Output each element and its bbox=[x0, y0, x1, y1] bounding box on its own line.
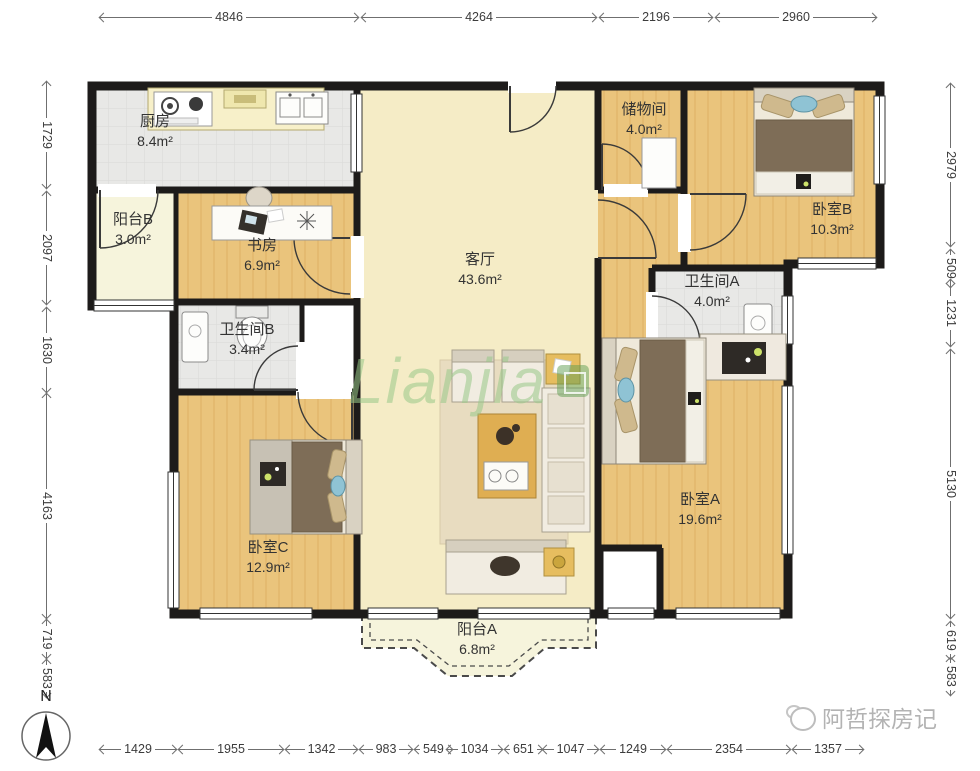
dim-top-1: 4846 bbox=[100, 10, 358, 24]
bed-c-bed bbox=[250, 440, 362, 534]
window bbox=[478, 608, 590, 619]
living-room-set bbox=[440, 350, 590, 594]
dim-right-6: 583 bbox=[944, 658, 958, 690]
room-label-bath-b: 卫生间B 3.4m² bbox=[197, 320, 297, 358]
window bbox=[798, 258, 876, 269]
publisher-watermark: 阿哲探房记 bbox=[786, 700, 937, 734]
room-label-bed-c: 卧室C 12.9m² bbox=[218, 538, 318, 576]
compass: N bbox=[16, 688, 76, 769]
compass-rose-icon bbox=[16, 706, 76, 764]
room-label-living: 客厅 43.6m² bbox=[430, 250, 530, 288]
dim-right-5: 619 bbox=[944, 622, 958, 656]
room-label-bath-a: 卫生间A 4.0m² bbox=[662, 272, 762, 310]
exterior-notch bbox=[598, 548, 662, 612]
dim-top-2: 4264 bbox=[362, 10, 596, 24]
dim-right-3: 1231 bbox=[944, 280, 958, 346]
dim-bottom-9: 1249 bbox=[601, 742, 665, 756]
dim-right-1: 2979 bbox=[944, 84, 958, 246]
dim-bottom-2: 1955 bbox=[179, 742, 283, 756]
dim-bottom-11: 1357 bbox=[793, 742, 863, 756]
dim-left-3: 1630 bbox=[40, 308, 54, 392]
dim-left-5: 719 bbox=[40, 620, 54, 658]
dim-bottom-4: 983 bbox=[360, 742, 412, 756]
dim-top-4: 2960 bbox=[716, 10, 876, 24]
dim-left-2: 2097 bbox=[40, 192, 54, 304]
dim-right-4: 5130 bbox=[944, 350, 958, 618]
room-label-balcony-b: 阳台B 3.0m² bbox=[83, 210, 183, 248]
bed-b-bed bbox=[754, 88, 854, 196]
dim-bottom-1: 1429 bbox=[100, 742, 176, 756]
window bbox=[608, 608, 654, 619]
room-label-bed-b: 卧室B 10.3m² bbox=[782, 200, 882, 238]
window bbox=[200, 608, 312, 619]
window bbox=[94, 300, 174, 311]
floor-plan-screenshot: 厨房 8.4m² 阳台B 3.0m² 书房 6.9m² 卫生间B 3.4m² 客… bbox=[0, 0, 980, 771]
storage-shelf bbox=[642, 138, 676, 188]
dim-bottom-7: 651 bbox=[505, 742, 540, 756]
room-label-kitchen: 厨房 8.4m² bbox=[105, 112, 205, 150]
room-label-study: 书房 6.9m² bbox=[212, 236, 312, 274]
compass-north-label: N bbox=[16, 688, 76, 706]
mascot-icon bbox=[786, 705, 816, 729]
dim-bottom-10: 2354 bbox=[668, 742, 790, 756]
dim-bottom-3: 1342 bbox=[286, 742, 357, 756]
room-label-balcony-a: 阳台A 6.8m² bbox=[427, 620, 527, 658]
window bbox=[368, 608, 438, 619]
dim-right-2: 509 bbox=[944, 250, 958, 276]
dim-top-3: 2196 bbox=[600, 10, 712, 24]
publisher-watermark-text: 阿哲探房记 bbox=[822, 700, 937, 734]
dim-bottom-8: 1047 bbox=[543, 742, 598, 756]
window bbox=[351, 94, 362, 172]
dim-left-1: 1729 bbox=[40, 82, 54, 188]
window bbox=[676, 608, 780, 619]
dim-bottom-6: 1034 bbox=[447, 742, 502, 756]
dim-left-4: 4163 bbox=[40, 394, 54, 618]
dim-bottom-5: 549 bbox=[415, 742, 444, 756]
window bbox=[168, 472, 179, 608]
window bbox=[782, 386, 793, 554]
room-label-storage: 储物间 4.0m² bbox=[594, 100, 694, 138]
room-label-bed-a: 卧室A 19.6m² bbox=[650, 490, 750, 528]
window bbox=[874, 96, 885, 184]
